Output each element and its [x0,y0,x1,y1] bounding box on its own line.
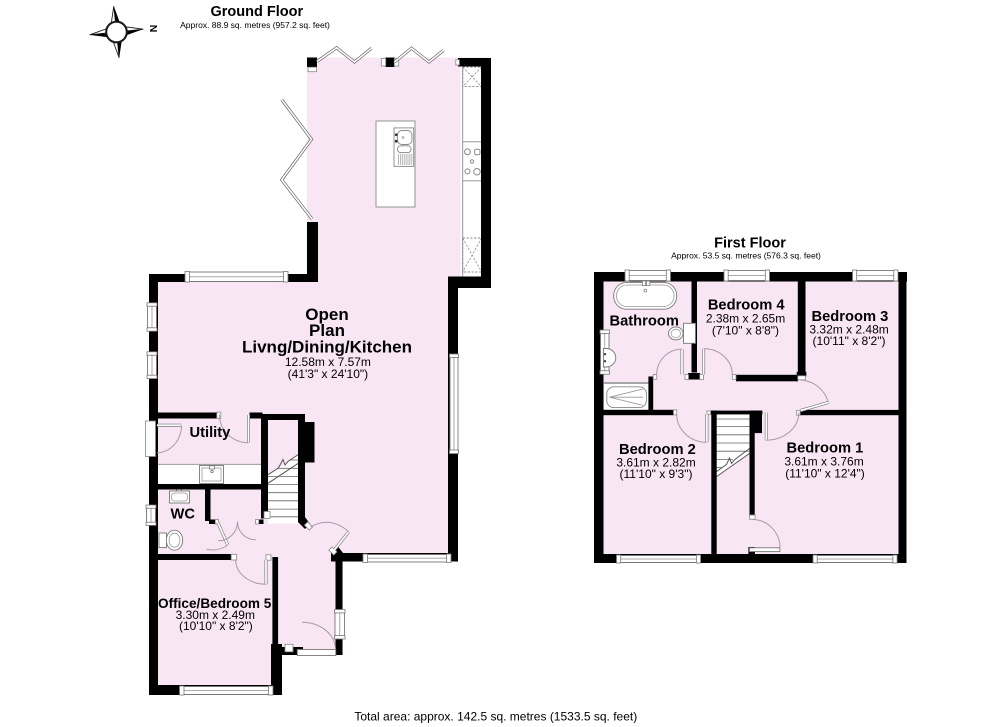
svg-text:Livng/Dining/Kitchen: Livng/Dining/Kitchen [242,337,412,356]
svg-text:N: N [147,25,159,33]
svg-text:Ground Floor: Ground Floor [210,4,303,20]
svg-text:(11'10" x 9'3"): (11'10" x 9'3") [620,467,693,481]
svg-text:(10'10" x 8'2"): (10'10" x 8'2") [179,619,253,633]
svg-text:(41'3" x 24'10"): (41'3" x 24'10") [288,367,368,381]
svg-text:Bathroom: Bathroom [610,314,679,330]
svg-text:WC: WC [171,506,196,522]
svg-text:Utility: Utility [189,425,231,441]
svg-text:Total area: approx. 142.5 sq.: Total area: approx. 142.5 sq. metres (15… [354,710,637,724]
svg-text:(7'10" x 8'8"): (7'10" x 8'8") [712,323,779,337]
svg-text:Approx. 53.5 sq. metres (576.3: Approx. 53.5 sq. metres (576.3 sq. feet) [671,251,821,261]
svg-text:First Floor: First Floor [714,236,786,252]
svg-text:(11'10" x 12'4"): (11'10" x 12'4") [785,466,865,480]
svg-text:Approx. 88.9 sq. metres (957.2: Approx. 88.9 sq. metres (957.2 sq. feet) [180,20,330,30]
svg-text:(10'11" x 8'2"): (10'11" x 8'2") [813,334,886,348]
